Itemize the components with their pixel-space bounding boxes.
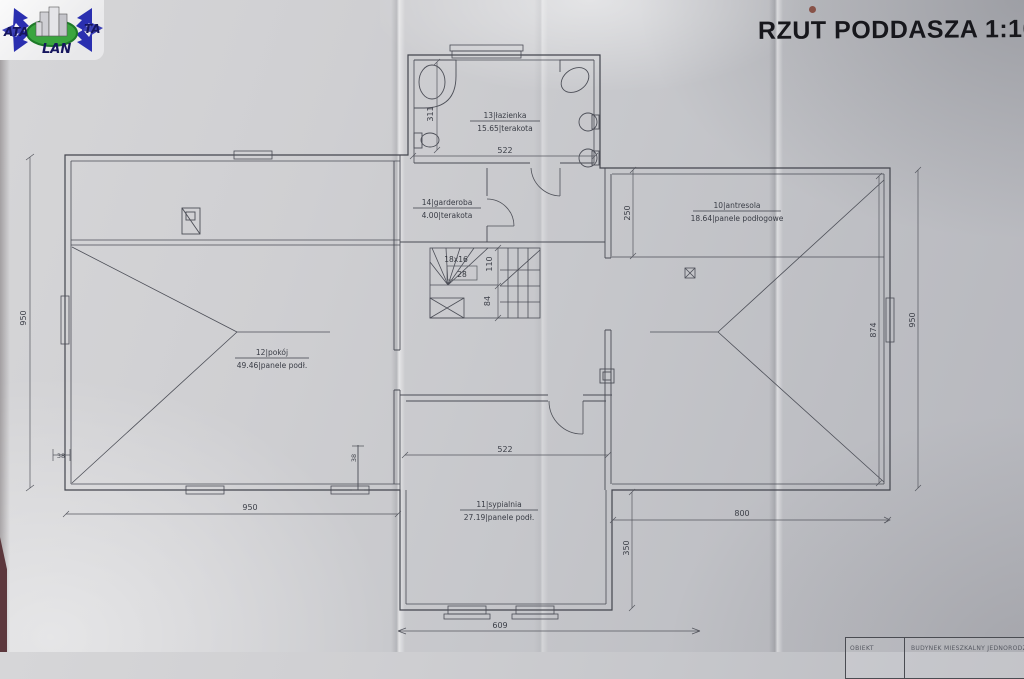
logo-text-right: TA	[84, 22, 101, 36]
title-block-value: BUDYNEK MIESZKALNY JEDNORODZINNY	[905, 638, 1024, 678]
room-label-bathroom-area: 15.65|terakota	[477, 124, 532, 133]
room-label-room-name: 12|pokój	[256, 348, 288, 357]
room-label-wardrobe-name: 14|garderoba	[422, 198, 473, 207]
attic-roof-lines	[71, 180, 884, 483]
room-label-mezzanine-area: 18.64|panele podłogowe	[691, 214, 784, 223]
door-symbols	[487, 168, 583, 434]
dim-bedroom-side: 350	[622, 540, 631, 555]
bathtub-symbol	[414, 60, 456, 108]
dim-right-height: 950	[908, 312, 917, 327]
logo-text-left: ATA	[3, 25, 29, 39]
dimension-lines	[26, 59, 921, 634]
dim-wall-left: 38	[57, 452, 65, 460]
dim-stairs-lower: 84	[483, 296, 492, 306]
dim-bathroom-width: 522	[497, 146, 512, 155]
dim-wall-mid: 38	[350, 454, 358, 462]
room-label-bedroom-area: 27.19|panele podł.	[464, 513, 534, 522]
toilet-symbol	[414, 133, 439, 148]
stairs-count-label: 28	[457, 270, 467, 279]
title-block-label: OBIEKT	[846, 638, 905, 678]
dim-bathroom-height: 311	[426, 106, 435, 121]
dim-bottom-right-width: 800	[734, 509, 749, 518]
logo-buildings-icon	[36, 7, 67, 36]
chimney-symbol	[182, 208, 200, 234]
electrical-box-symbol	[600, 369, 614, 383]
page-title: RZUT PODDASZA 1:100	[758, 15, 1024, 46]
dim-mezzanine-inner-height: 874	[869, 322, 878, 337]
room-label-bathroom-name: 13|łazienka	[484, 111, 527, 120]
sink-symbol	[579, 113, 599, 167]
inner-walls	[71, 60, 884, 604]
shower-symbol	[556, 60, 594, 98]
room-label-bedroom-name: 11|sypialnia	[476, 500, 521, 509]
dim-bedroom-width: 522	[497, 445, 512, 454]
interior-walls	[358, 155, 612, 490]
logo-text-bottom: LAN	[42, 42, 71, 57]
stairs-format-label: 18x16	[444, 255, 468, 264]
dim-stairs-upper: 110	[485, 256, 494, 271]
floor-plan-drawing: 13|łazienka 15.65|terakota 14|garderoba …	[0, 0, 1024, 652]
agency-logo: ATA TA LAN	[0, 0, 104, 60]
title-block: OBIEKT BUDYNEK MIESZKALNY JEDNORODZINNY	[845, 637, 1024, 679]
dim-bottom-left-width: 950	[242, 503, 257, 512]
room-label-wardrobe-area: 4.00|terakota	[422, 211, 473, 220]
room-label-room-area: 49.46|panele podł.	[237, 361, 307, 370]
dim-bedroom-bottom-width: 609	[492, 621, 507, 630]
dim-left-height: 950	[19, 310, 28, 325]
vent-symbol	[685, 268, 695, 278]
room-label-mezzanine-name: 10|antresola	[713, 201, 760, 210]
dim-mezzanine-top: 250	[623, 205, 632, 220]
exterior-walls	[65, 55, 890, 610]
